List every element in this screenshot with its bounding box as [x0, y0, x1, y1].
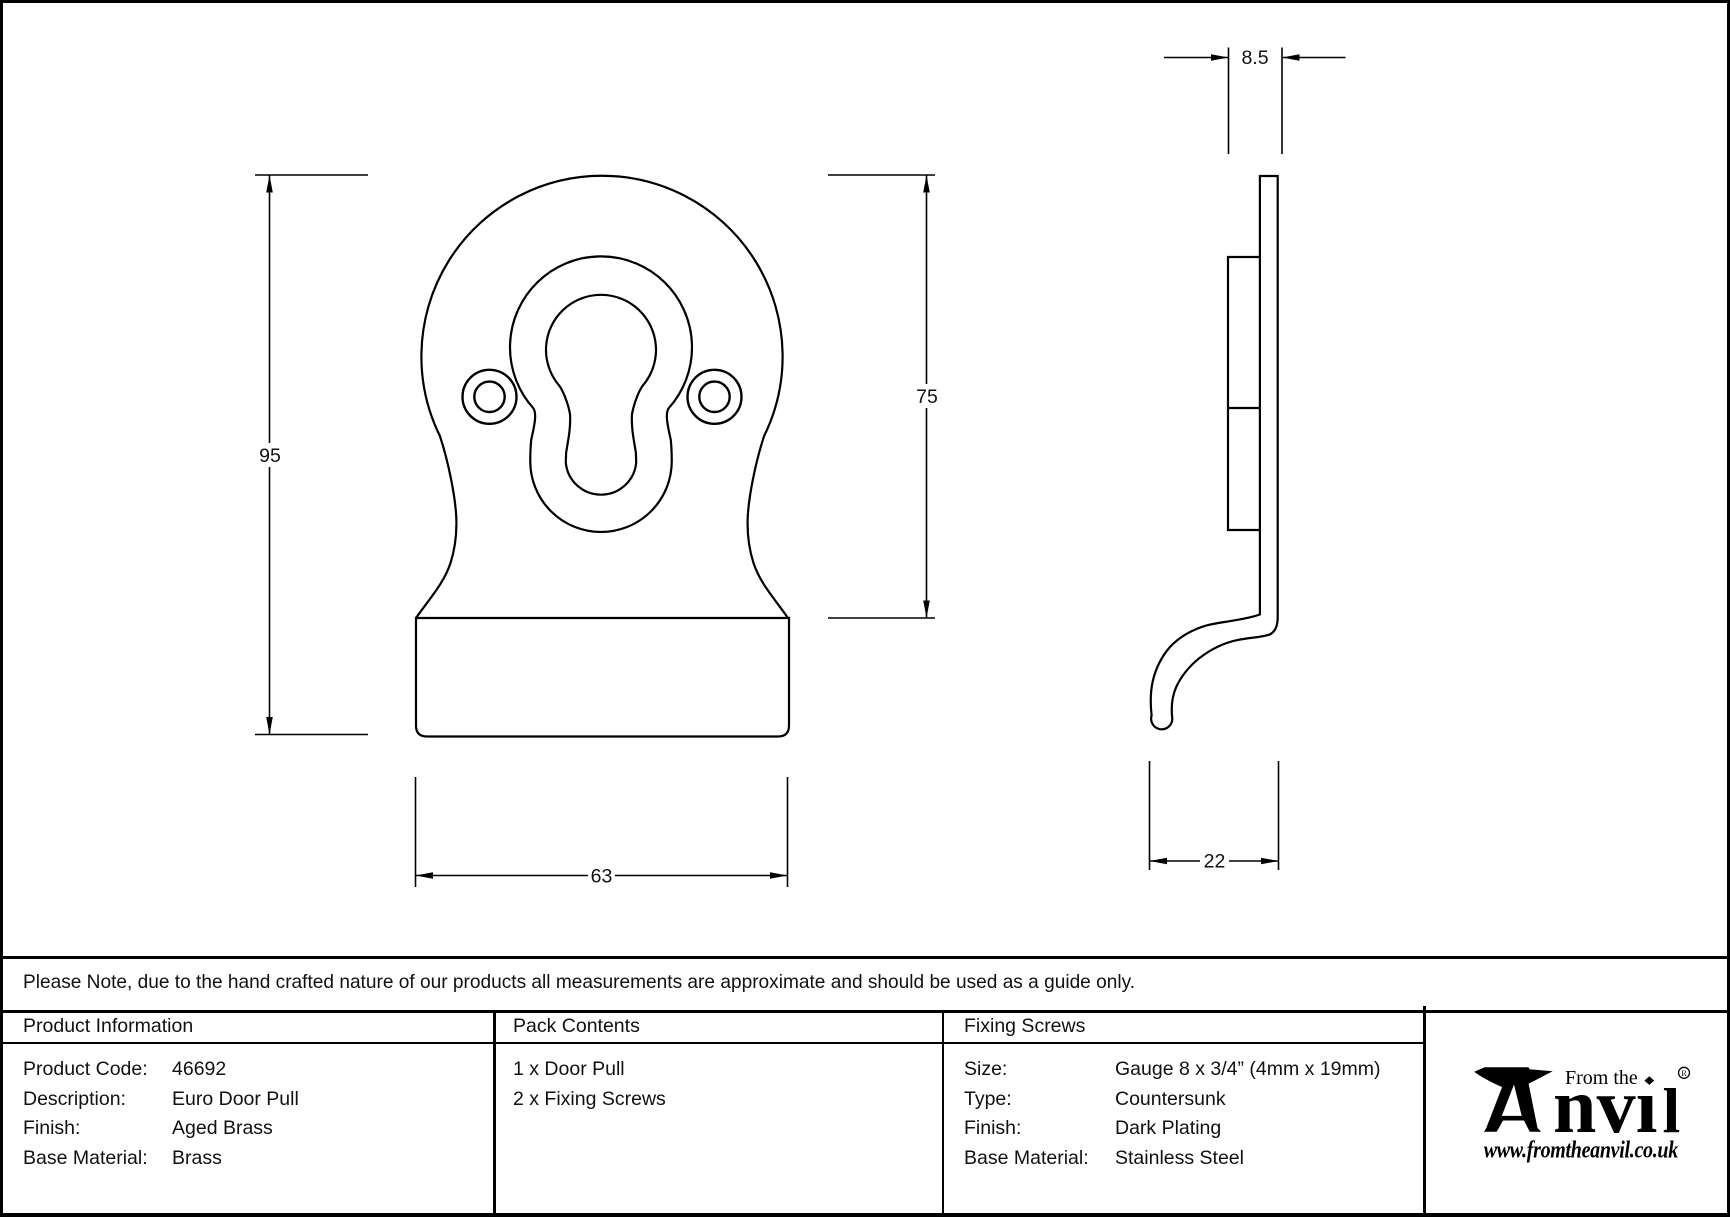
svg-text:www.fromtheanvil.co.uk: www.fromtheanvil.co.uk [1484, 1136, 1678, 1163]
svg-text:8.5: 8.5 [1241, 47, 1268, 69]
svg-text:75: 75 [916, 386, 938, 408]
svg-text:22: 22 [1204, 851, 1226, 873]
svg-text:R: R [1681, 1069, 1687, 1078]
svg-text:63: 63 [591, 866, 613, 888]
svg-text:95: 95 [259, 445, 281, 467]
